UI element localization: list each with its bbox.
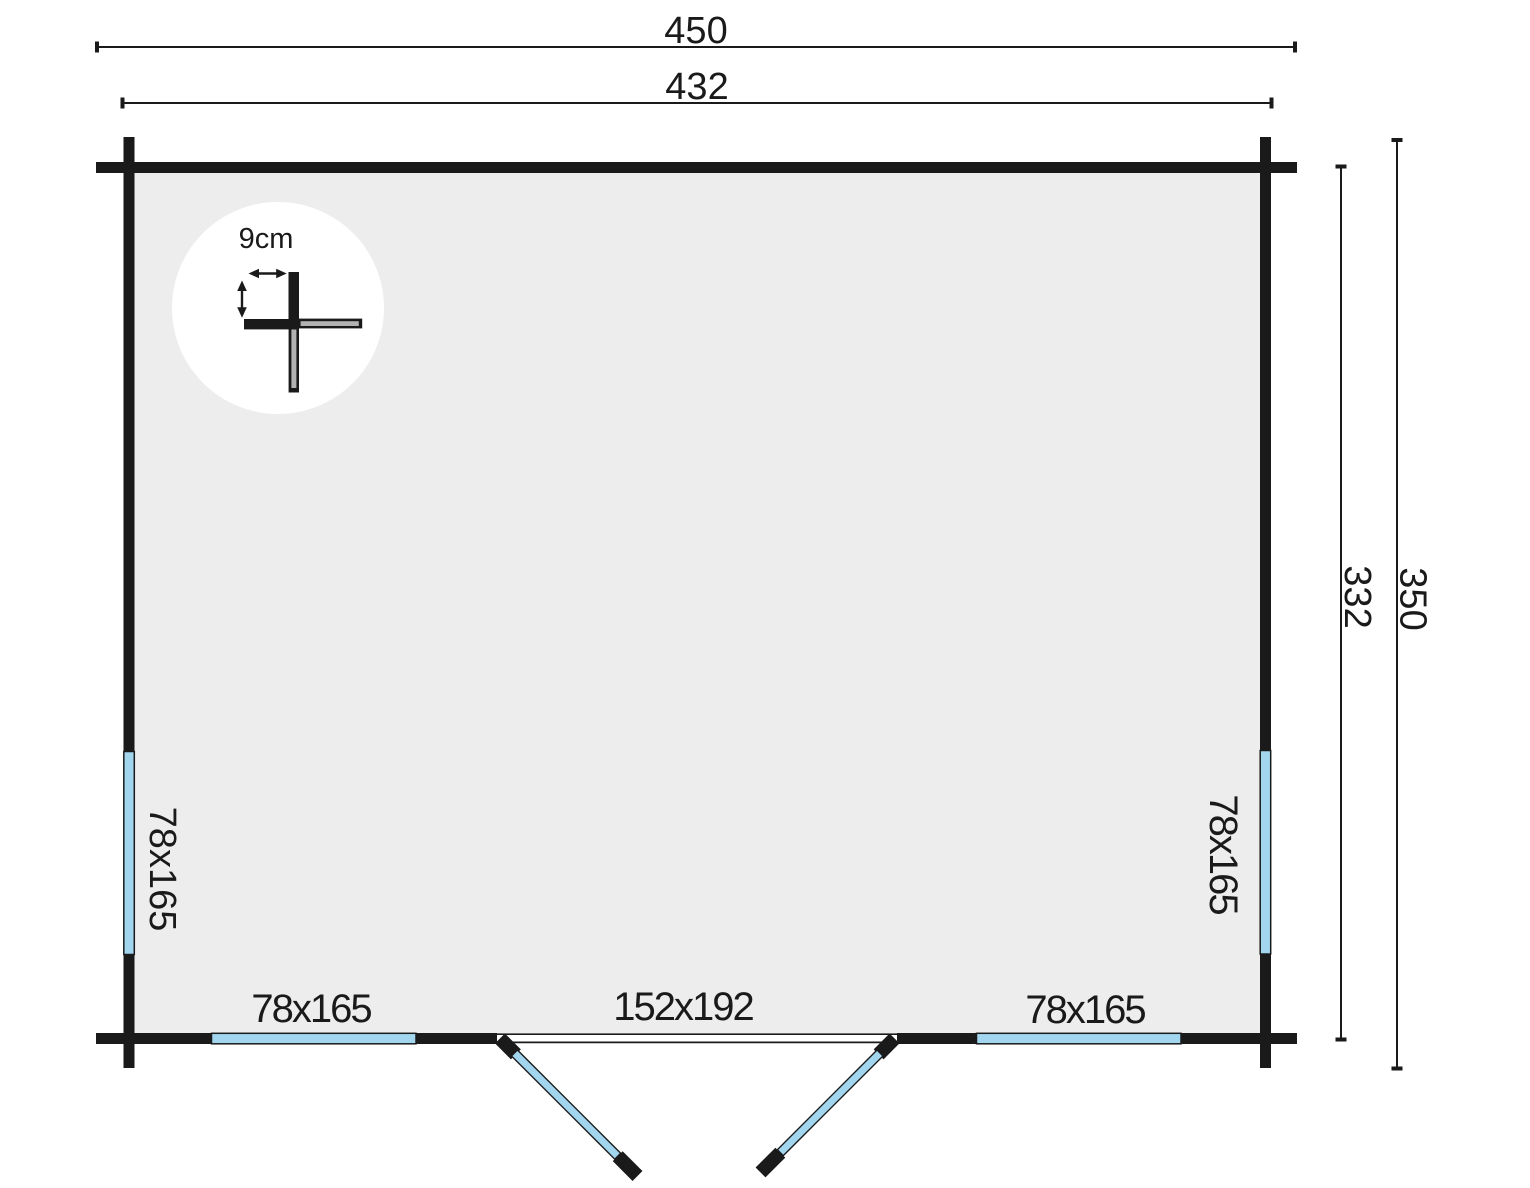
svg-text:152x192: 152x192: [613, 985, 753, 1029]
svg-text:9cm: 9cm: [239, 223, 294, 255]
svg-text:78x165: 78x165: [141, 807, 183, 932]
svg-text:350: 350: [1392, 567, 1434, 630]
svg-text:78x165: 78x165: [251, 987, 371, 1031]
svg-text:450: 450: [664, 10, 727, 52]
svg-text:78x165: 78x165: [1025, 988, 1145, 1032]
svg-text:432: 432: [665, 66, 728, 108]
svg-text:78x165: 78x165: [1201, 794, 1245, 914]
svg-text:332: 332: [1336, 565, 1378, 628]
